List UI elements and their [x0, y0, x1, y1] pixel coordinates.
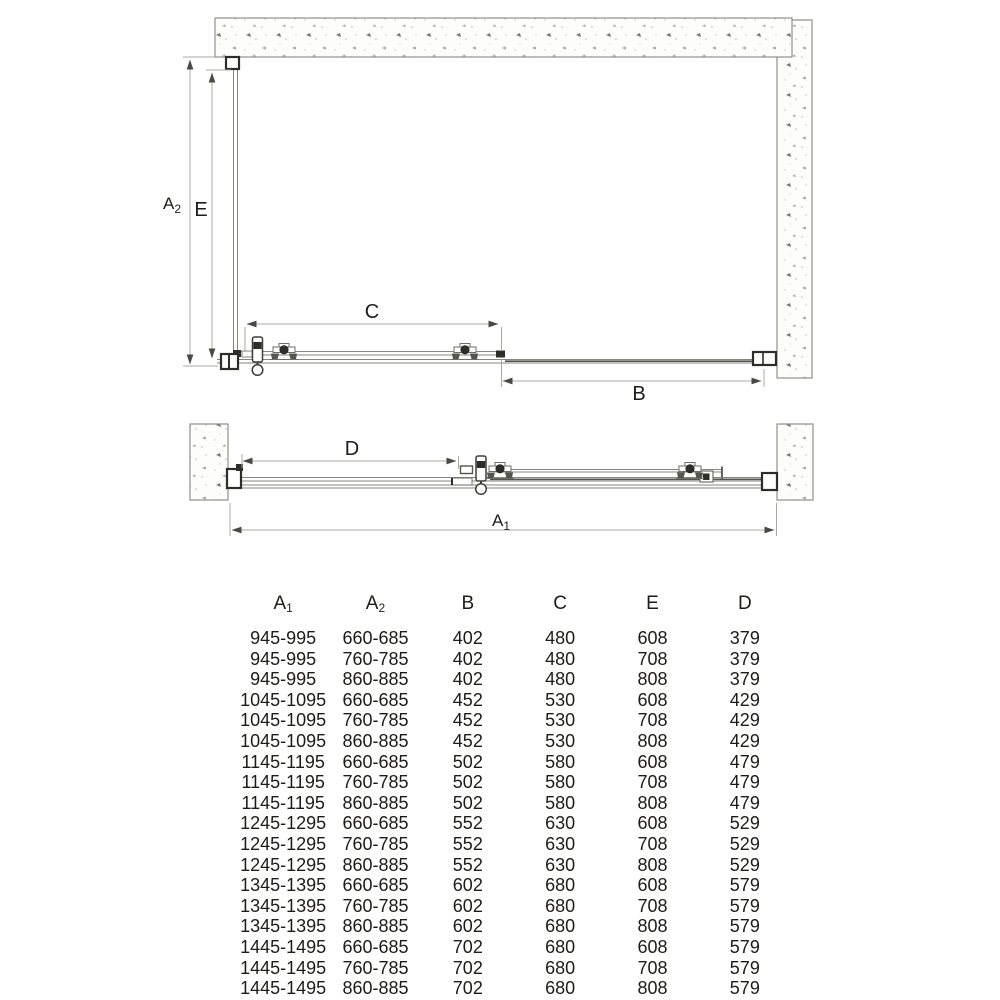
table-cell: 1045-1095 [237, 690, 329, 711]
table-cell: 1145-1195 [237, 752, 329, 773]
table-cell: 808 [606, 731, 698, 752]
table-cell: 552 [422, 813, 514, 834]
table-cell: 860-885 [329, 916, 421, 937]
table-cell: 1245-1295 [237, 834, 329, 855]
table-cell: 860-885 [329, 793, 421, 814]
column-header: A2 [329, 593, 421, 615]
wall-right [215, 18, 792, 57]
table-header-row: A1A2BCED [237, 588, 791, 620]
column-header: A1 [237, 593, 329, 615]
table-cell: 945-995 [237, 669, 329, 690]
door-track [217, 350, 776, 369]
table-cell: 808 [606, 916, 698, 937]
table-cell: 529 [699, 834, 791, 855]
table-cell: 860-885 [329, 731, 421, 752]
table-cell: 760-785 [329, 958, 421, 979]
top-wall-bracket [226, 57, 239, 69]
door-handle [476, 456, 487, 494]
door-rail-end-cap [496, 351, 505, 358]
table-cell: 708 [606, 710, 698, 731]
table-cell: 530 [514, 731, 606, 752]
table-cell: 608 [606, 628, 698, 649]
table-cell: 608 [606, 875, 698, 896]
table-cell: 808 [606, 793, 698, 814]
table-cell: 429 [699, 731, 791, 752]
table-cell: 630 [514, 813, 606, 834]
table-cell: 708 [606, 958, 698, 979]
table-cell: 660-685 [329, 690, 421, 711]
table-cell: 760-785 [329, 649, 421, 670]
table-cell: 660-685 [329, 752, 421, 773]
table-cell: 708 [606, 649, 698, 670]
table-cell: 860-885 [329, 855, 421, 876]
label-d: D [345, 438, 359, 460]
wall-top [777, 20, 812, 378]
table-cell: 702 [422, 958, 514, 979]
table-cell: 702 [422, 978, 514, 999]
table-row: 1445-1495860-885702680808579 [237, 978, 791, 999]
table-cell: 1045-1095 [237, 731, 329, 752]
table-cell: 502 [422, 793, 514, 814]
table-cell: 402 [422, 669, 514, 690]
table-row: 945-995860-885402480808379 [237, 669, 791, 690]
plan-view: A2 E C B [163, 18, 812, 405]
table-cell: 502 [422, 752, 514, 773]
table-cell: 580 [514, 752, 606, 773]
table-cell: 630 [514, 834, 606, 855]
column-header: E [606, 593, 698, 615]
wall-left-block [190, 424, 228, 500]
guide-bracket [461, 466, 473, 474]
table-cell: 602 [422, 896, 514, 917]
table-cell: 1445-1495 [237, 958, 329, 979]
label-c: C [365, 301, 379, 323]
label-a2: A2 [163, 194, 181, 216]
table-cell: 608 [606, 690, 698, 711]
section-view: D A1 [190, 424, 813, 536]
table-cell: 708 [606, 896, 698, 917]
table-row: 1245-1295860-885552630808529 [237, 855, 791, 876]
table-row: 1445-1495660-685702680608579 [237, 937, 791, 958]
table-cell: 1345-1395 [237, 896, 329, 917]
table-body: 945-995660-685402480608379945-995760-785… [237, 628, 791, 999]
table-cell: 945-995 [237, 649, 329, 670]
table-cell: 660-685 [329, 813, 421, 834]
dimension-a1: A1 [230, 503, 777, 536]
table-cell: 579 [699, 958, 791, 979]
wall-bracket-left [227, 469, 241, 488]
table-cell: 579 [699, 937, 791, 958]
table-cell: 608 [606, 752, 698, 773]
table-cell: 660-685 [329, 875, 421, 896]
roller-bracket [676, 463, 704, 479]
table-row: 1345-1395760-785602680708579 [237, 896, 791, 917]
table-row: 1145-1195660-685502580608479 [237, 752, 791, 773]
table-cell: 529 [699, 855, 791, 876]
wall-right-block [777, 424, 813, 500]
table-cell: 480 [514, 669, 606, 690]
table-cell: 945-995 [237, 628, 329, 649]
dimension-d: D [242, 438, 459, 469]
table-row: 1045-1095760-785452530708429 [237, 710, 791, 731]
table-cell: 660-685 [329, 937, 421, 958]
table-cell: 579 [699, 875, 791, 896]
table-cell: 860-885 [329, 669, 421, 690]
label-a1: A1 [492, 511, 510, 533]
table-cell: 680 [514, 958, 606, 979]
table-cell: 479 [699, 752, 791, 773]
door-handle [252, 337, 263, 375]
table-cell: 1445-1495 [237, 937, 329, 958]
technical-drawing: A2 E C B [0, 0, 1000, 560]
column-header: D [699, 593, 791, 615]
table-row: 1045-1095860-885452530808429 [237, 731, 791, 752]
table-cell: 760-785 [329, 772, 421, 793]
table-cell: 530 [514, 690, 606, 711]
table-cell: 579 [699, 916, 791, 937]
table-row: 1045-1095660-685452530608429 [237, 690, 791, 711]
dimension-table: A1A2BCED 945-995660-685402480608379945-9… [237, 588, 791, 999]
label-e: E [194, 199, 207, 221]
table-row: 945-995760-785402480708379 [237, 649, 791, 670]
table-cell: 429 [699, 690, 791, 711]
table-cell: 502 [422, 772, 514, 793]
table-cell: 379 [699, 628, 791, 649]
table-cell: 808 [606, 669, 698, 690]
dimension-e: E [194, 70, 231, 358]
table-cell: 680 [514, 916, 606, 937]
table-cell: 760-785 [329, 896, 421, 917]
table-cell: 529 [699, 813, 791, 834]
table-cell: 480 [514, 628, 606, 649]
table-cell: 660-685 [329, 628, 421, 649]
table-cell: 1445-1495 [237, 978, 329, 999]
table-cell: 1145-1195 [237, 772, 329, 793]
dimension-b: B [502, 359, 765, 405]
table-cell: 630 [514, 855, 606, 876]
table-row: 1445-1495760-785702680708579 [237, 958, 791, 979]
bottom-guide [452, 478, 472, 485]
table-cell: 480 [514, 649, 606, 670]
table-cell: 602 [422, 875, 514, 896]
table-cell: 552 [422, 855, 514, 876]
table-cell: 680 [514, 896, 606, 917]
table-cell: 808 [606, 978, 698, 999]
label-b: B [632, 383, 645, 405]
table-cell: 452 [422, 690, 514, 711]
wall-bracket-right [762, 473, 777, 490]
roller-bracket [486, 463, 514, 479]
wall-profile-right [753, 352, 776, 365]
table-cell: 1145-1195 [237, 793, 329, 814]
table-cell: 860-885 [329, 978, 421, 999]
table-row: 945-995660-685402480608379 [237, 628, 791, 649]
column-header: C [514, 593, 606, 615]
table-row: 1145-1195860-885502580808479 [237, 793, 791, 814]
table-cell: 452 [422, 710, 514, 731]
roller-bracket [451, 344, 479, 360]
dimension-a2: A2 [163, 57, 218, 366]
table-cell: 479 [699, 793, 791, 814]
table-cell: 1345-1395 [237, 875, 329, 896]
table-cell: 680 [514, 875, 606, 896]
table-cell: 760-785 [329, 710, 421, 731]
table-cell: 1245-1295 [237, 813, 329, 834]
table-cell: 702 [422, 937, 514, 958]
table-cell: 429 [699, 710, 791, 731]
table-row: 1345-1395660-685602680608579 [237, 875, 791, 896]
side-glass-panel [226, 57, 239, 352]
table-cell: 708 [606, 772, 698, 793]
table-cell: 680 [514, 978, 606, 999]
column-header: B [422, 593, 514, 615]
table-cell: 808 [606, 855, 698, 876]
table-cell: 379 [699, 669, 791, 690]
table-cell: 530 [514, 710, 606, 731]
table-cell: 708 [606, 834, 698, 855]
table-cell: 1245-1295 [237, 855, 329, 876]
table-cell: 579 [699, 896, 791, 917]
table-cell: 452 [422, 731, 514, 752]
table-cell: 608 [606, 937, 698, 958]
table-row: 1245-1295660-685552630608529 [237, 813, 791, 834]
table-cell: 402 [422, 628, 514, 649]
table-cell: 760-785 [329, 834, 421, 855]
table-row: 1245-1295760-785552630708529 [237, 834, 791, 855]
table-cell: 1045-1095 [237, 710, 329, 731]
table-cell: 602 [422, 916, 514, 937]
table-cell: 479 [699, 772, 791, 793]
table-cell: 580 [514, 772, 606, 793]
table-cell: 680 [514, 937, 606, 958]
table-cell: 379 [699, 649, 791, 670]
table-cell: 402 [422, 649, 514, 670]
table-cell: 1345-1395 [237, 916, 329, 937]
roller-bracket [270, 344, 298, 360]
table-row: 1145-1195760-785502580708479 [237, 772, 791, 793]
table-cell: 608 [606, 813, 698, 834]
table-cell: 580 [514, 793, 606, 814]
table-cell: 552 [422, 834, 514, 855]
table-cell: 579 [699, 978, 791, 999]
table-row: 1345-1395860-885602680808579 [237, 916, 791, 937]
